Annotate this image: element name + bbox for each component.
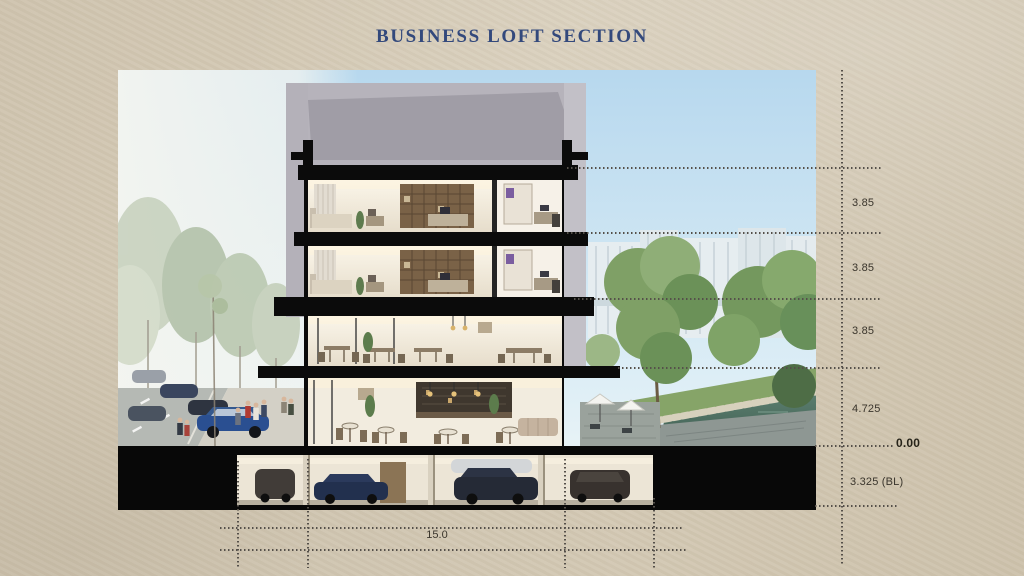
dimension-tick — [564, 459, 566, 568]
dimension-level-line — [618, 367, 881, 369]
dimension-width-line — [220, 549, 686, 551]
dim-label-zero-datum: 0.00 — [896, 437, 920, 450]
dimension-level-line-zero — [815, 445, 893, 447]
dim-label-ground: 4.725 — [852, 403, 881, 416]
dimension-level-line — [574, 298, 881, 300]
dim-label-basement: 3.325 (BL) — [850, 476, 903, 489]
dim-label-level-2: 3.85 — [852, 325, 874, 338]
dimension-level-line-basement — [815, 505, 898, 507]
dimension-tick — [653, 498, 655, 568]
dim-label-level-4: 3.85 — [852, 197, 874, 210]
dimension-vertical-line — [841, 70, 843, 565]
dim-label-width: 15.0 — [415, 529, 459, 542]
dim-label-level-3: 3.85 — [852, 262, 874, 275]
dimension-annotations: 3.85 3.85 3.85 4.725 0.00 3.325 (BL) 15.… — [0, 0, 1024, 576]
dimension-tick — [307, 459, 309, 568]
dimension-level-line — [567, 167, 881, 169]
dimension-tick — [237, 461, 239, 568]
dimension-level-line — [567, 232, 881, 234]
presentation-slide: BUSINESS LOFT SECTION — [0, 0, 1024, 576]
